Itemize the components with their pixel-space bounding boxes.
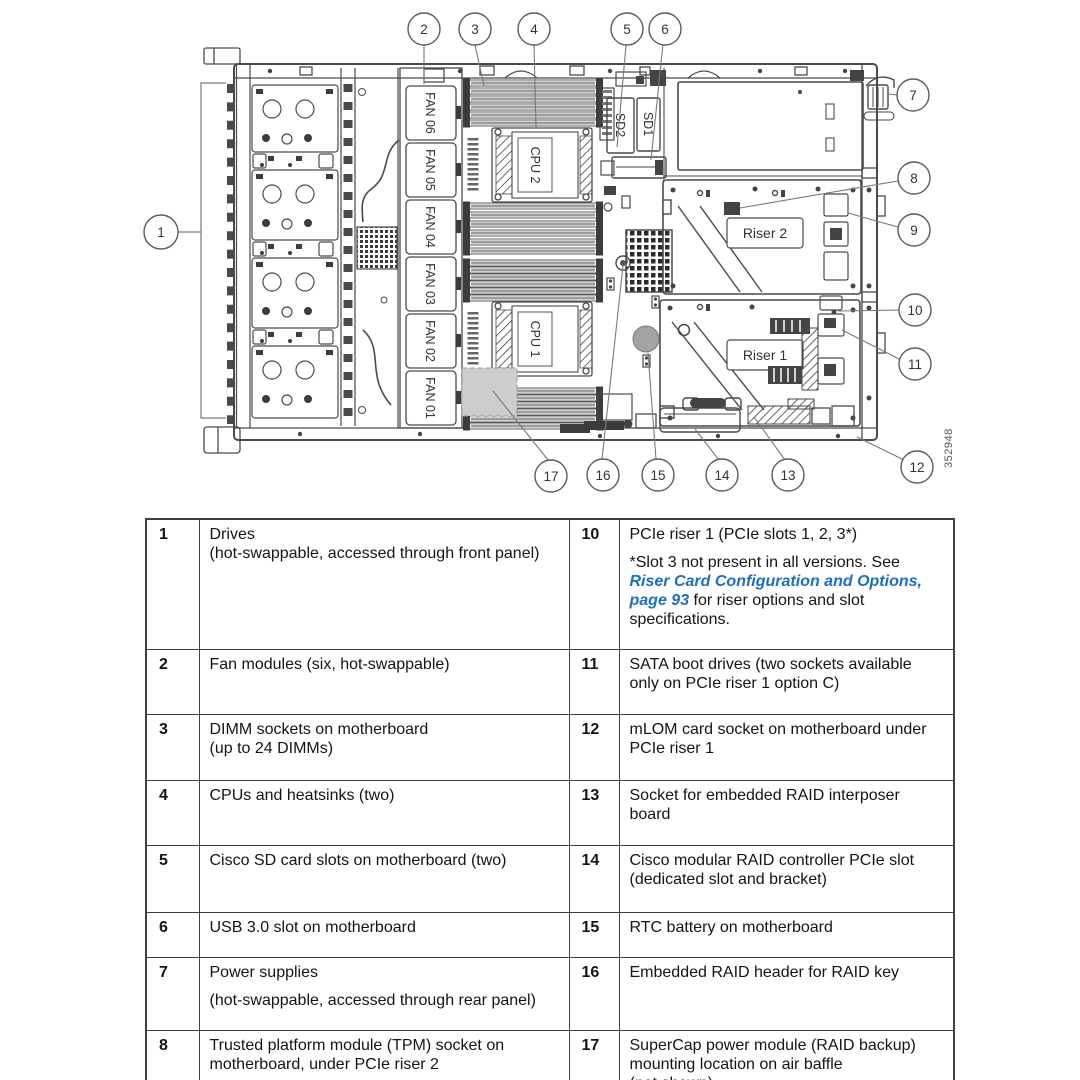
drive-latch-row <box>253 242 333 256</box>
dimm-bank-mid1 <box>463 202 603 256</box>
callout-13: 13 <box>772 459 804 491</box>
svg-text:13: 13 <box>780 468 795 483</box>
legend-desc-11: SATA boot drives (two sockets available … <box>619 650 954 715</box>
svg-text:12: 12 <box>909 460 924 475</box>
connector-grid <box>357 227 397 269</box>
legend-table: 1 Drives (hot-swappable, accessed throug… <box>145 518 955 1080</box>
legend-desc-1: Drives (hot-swappable, accessed through … <box>199 519 569 650</box>
legend-desc-5: Cisco SD card slots on motherboard (two) <box>199 846 569 913</box>
svg-text:2: 2 <box>420 22 428 37</box>
callout-9: 9 <box>898 214 930 246</box>
callout-12: 12 <box>901 451 933 483</box>
jumper <box>607 278 614 290</box>
legend-desc-13: Socket for embedded RAID interposer boar… <box>619 781 954 846</box>
cpu1-assembly: CPU 1 <box>492 302 592 376</box>
legend-row: 4 CPUs and heatsinks (two) 13 Socket for… <box>146 781 954 846</box>
riser1-label: Riser 1 <box>743 347 788 363</box>
dimm-bank-mid2 <box>463 259 603 303</box>
server-top-view-diagram: FAN 06 FAN 05 FAN 04 FAN 03 FAN 02 FAN 0… <box>0 0 1080 512</box>
jumper <box>652 296 659 308</box>
legend-row: 7 Power supplies (hot-swappable, accesse… <box>146 958 954 1031</box>
legend-num-16: 16 <box>569 958 619 1031</box>
legend-desc-6: USB 3.0 slot on motherboard <box>199 913 569 958</box>
svg-text:5: 5 <box>623 22 631 37</box>
legend-num-17: 17 <box>569 1031 619 1080</box>
svg-text:4: 4 <box>530 22 538 37</box>
fan-label: FAN 01 <box>423 377 437 419</box>
legend-desc-7: Power supplies (hot-swappable, accessed … <box>199 958 569 1031</box>
fan-label: FAN 06 <box>423 92 437 134</box>
cable-area <box>357 68 399 428</box>
fan-module: FAN 01 <box>406 371 461 425</box>
riser2-label: Riser 2 <box>743 225 788 241</box>
drive-bays <box>252 85 338 418</box>
legend-desc-17: SuperCap power module (RAID backup) moun… <box>619 1031 954 1080</box>
legend-num-1: 1 <box>146 519 199 650</box>
legend-num-15: 15 <box>569 913 619 958</box>
legend-row: 8 Trusted platform module (TPM) socket o… <box>146 1031 954 1080</box>
fan-module: FAN 02 <box>406 314 461 368</box>
drive-backplane <box>341 68 355 426</box>
svg-text:10: 10 <box>907 303 922 318</box>
drive-tray <box>252 346 338 418</box>
legend-desc-16: Embedded RAID header for RAID key <box>619 958 954 1031</box>
manual-page: FAN 06 FAN 05 FAN 04 FAN 03 FAN 02 FAN 0… <box>0 0 1080 1080</box>
footnote-text: *Slot 3 not present in all versions. See <box>630 554 900 571</box>
legend-num-5: 5 <box>146 846 199 913</box>
fan-label: FAN 05 <box>423 149 437 191</box>
legend-num-10: 10 <box>569 519 619 650</box>
svg-text:1: 1 <box>157 225 165 240</box>
callout-15: 15 <box>642 459 674 491</box>
svg-text:6: 6 <box>661 22 669 37</box>
riser2-rear-connectors <box>824 194 848 280</box>
sd1-label: SD1 <box>641 112 655 136</box>
svg-text:3: 3 <box>471 22 479 37</box>
fan-label: FAN 03 <box>423 263 437 305</box>
legend-num-6: 6 <box>146 913 199 958</box>
legend-num-3: 3 <box>146 715 199 781</box>
legend-num-11: 11 <box>569 650 619 715</box>
fan-module: FAN 04 <box>406 200 461 254</box>
psu-handle <box>864 77 894 120</box>
pcie-slot-comb <box>768 366 802 384</box>
svg-text:16: 16 <box>595 468 610 483</box>
drive-tray <box>252 258 338 328</box>
callout1-bracket <box>178 83 226 418</box>
legend-row: 3 DIMM sockets on motherboard (up to 24 … <box>146 715 954 781</box>
tpm-socket <box>724 202 740 215</box>
rtc-battery <box>633 326 659 352</box>
drive-tray <box>252 170 338 240</box>
drive-tray <box>252 85 338 152</box>
fan-label: FAN 04 <box>423 206 437 248</box>
mlom-area <box>812 406 854 426</box>
rack-ear-top-left <box>204 48 240 64</box>
callout-5: 5 <box>611 13 643 45</box>
callout-10: 10 <box>899 294 931 326</box>
svg-text:9: 9 <box>910 223 918 238</box>
legend-num-13: 13 <box>569 781 619 846</box>
callout-3: 3 <box>459 13 491 45</box>
fan-module: FAN 03 <box>406 257 461 311</box>
svg-text:7: 7 <box>909 88 917 103</box>
svg-text:14: 14 <box>714 468 730 483</box>
legend-desc-14: Cisco modular RAID controller PCIe slot … <box>619 846 954 913</box>
fan-module: FAN 06 <box>406 86 461 140</box>
supercap-mounting-pad <box>462 368 517 416</box>
fan-label: FAN 02 <box>423 320 437 362</box>
svg-text:17: 17 <box>543 469 558 484</box>
legend-desc-12: mLOM card socket on motherboard under PC… <box>619 715 954 781</box>
cpu1-label: CPU 1 <box>528 321 542 358</box>
sata-boot-sockets <box>818 296 844 384</box>
usb3-slot <box>601 157 666 178</box>
figure-number: 352948 <box>943 428 955 468</box>
drive-latch-row <box>253 154 333 168</box>
legend-num-14: 14 <box>569 846 619 913</box>
fan-module: FAN 05 <box>406 143 461 197</box>
legend-desc-4: CPUs and heatsinks (two) <box>199 781 569 846</box>
legend-num-12: 12 <box>569 715 619 781</box>
pch-heatsink <box>626 230 672 292</box>
riser2-tray: Riser 2 <box>663 180 861 294</box>
legend-num-7: 7 <box>146 958 199 1031</box>
legend-desc-15: RTC battery on motherboard <box>619 913 954 958</box>
drive-latch-row <box>253 330 333 344</box>
cpu2-label: CPU 2 <box>528 147 542 184</box>
callout-14: 14 <box>706 459 738 491</box>
fan-tray: FAN 06 FAN 05 FAN 04 FAN 03 FAN 02 FAN 0… <box>400 68 462 428</box>
callout-4: 4 <box>518 13 550 45</box>
legend-row: 2 Fan modules (six, hot-swappable) 11 SA… <box>146 650 954 715</box>
legend-num-2: 2 <box>146 650 199 715</box>
legend-desc-2: Fan modules (six, hot-swappable) <box>199 650 569 715</box>
legend-desc-10: PCIe riser 1 (PCIe slots 1, 2, 3*) *Slot… <box>619 519 954 650</box>
callout-11: 11 <box>899 348 931 380</box>
legend-desc-3: DIMM sockets on motherboard (up to 24 DI… <box>199 715 569 781</box>
legend-row: 1 Drives (hot-swappable, accessed throug… <box>146 519 954 650</box>
svg-text:8: 8 <box>910 171 918 186</box>
callout-7: 7 <box>897 79 929 111</box>
cpu2-assembly: CPU 2 <box>492 128 592 202</box>
legend-num-4: 4 <box>146 781 199 846</box>
callout-16: 16 <box>587 459 619 491</box>
legend-row: 6 USB 3.0 slot on motherboard 15 RTC bat… <box>146 913 954 958</box>
power-supply <box>663 68 894 180</box>
svg-text:11: 11 <box>908 357 922 372</box>
svg-text:15: 15 <box>650 468 665 483</box>
callout-6: 6 <box>649 13 681 45</box>
callout-2: 2 <box>408 13 440 45</box>
legend-desc-8: Trusted platform module (TPM) socket on … <box>199 1031 569 1080</box>
callout-17: 17 <box>535 460 567 492</box>
legend-row: 5 Cisco SD card slots on motherboard (tw… <box>146 846 954 913</box>
legend-num-8: 8 <box>146 1031 199 1080</box>
callout-1: 1 <box>144 215 178 249</box>
callout-8: 8 <box>898 162 930 194</box>
